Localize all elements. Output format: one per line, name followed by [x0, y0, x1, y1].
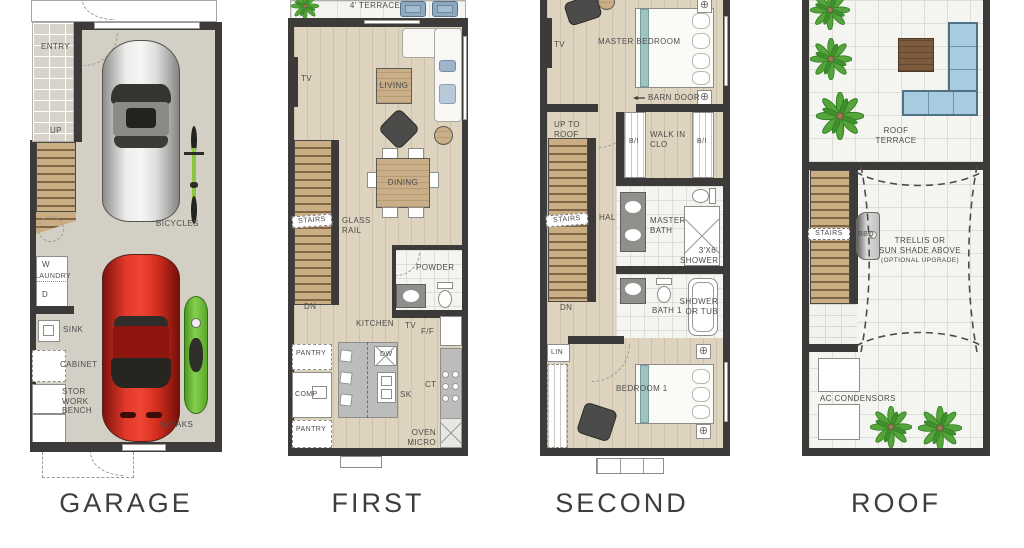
bedroom-wall-left [547, 104, 598, 112]
red-car [102, 254, 180, 442]
barn-door-label: BARN DOOR [648, 93, 700, 103]
powder-label: POWDER [416, 263, 454, 273]
garage-door [94, 22, 200, 29]
bay-window [596, 458, 664, 474]
window [463, 36, 467, 120]
toilet-bowl [438, 290, 452, 308]
bed-pillow [692, 13, 710, 29]
work-bench [32, 384, 66, 414]
laundry-label: LAUNDRY [35, 273, 71, 281]
roof-terrace-label: ROOF TERRACE [872, 126, 920, 145]
burner [442, 383, 449, 390]
kitchen-sink-basin [381, 376, 392, 386]
bed-pillow [692, 53, 710, 69]
kayak-cockpit [189, 338, 203, 372]
floor-plan-sheet: { "floors": { "garage": { "title": "GARA… [0, 0, 1024, 548]
stair-wall [332, 140, 339, 305]
dn-label: DN [560, 303, 572, 313]
sink-label: SINK [63, 325, 83, 335]
bedroom1-bed [635, 364, 714, 424]
island-centerline [367, 342, 368, 418]
burner [442, 371, 449, 378]
island-stool [339, 349, 352, 362]
dishwasher-label: DW [380, 351, 392, 359]
bedroom1-label: BEDROOM 1 [616, 384, 668, 394]
burner [452, 383, 459, 390]
stair-wall [588, 138, 596, 302]
bath-top-wall [616, 178, 723, 186]
entry-label: ENTRY [41, 42, 70, 52]
linen-label: LIN [551, 349, 563, 357]
bedroom1-closet [547, 364, 568, 448]
bath-divider-wall [616, 266, 723, 274]
storage-bench [32, 414, 66, 444]
up-label: UP [50, 126, 62, 136]
ceiling-fan-icon: ⊕ [697, 0, 712, 13]
toilet-bowl [692, 189, 709, 203]
palm-tree-icon [810, 0, 850, 30]
column-circle [38, 216, 64, 242]
oven-microwave [440, 418, 462, 448]
dining-chair [382, 207, 398, 218]
first-floor-plan: 4' TERRACE TV LIVING DINING STAIRS GLASS… [288, 0, 468, 470]
bath-sink [624, 282, 642, 296]
bath-sink [624, 228, 642, 242]
bed-pillow [692, 387, 710, 402]
glass-rail-label: GLASS RAIL [342, 216, 371, 235]
palm-tree-icon [290, 0, 320, 20]
garage-sink-basin [43, 325, 54, 336]
cabinet-label: CABINET [60, 360, 97, 370]
toilet-bowl [657, 286, 671, 303]
garage-floor-plan: ENTRY UP W LAUNDRY D SINK CABINET STOR W… [30, 0, 222, 478]
kitchen-sink-basin [381, 389, 392, 399]
red-car-windshield [111, 358, 171, 388]
dining-chair [408, 207, 424, 218]
trellis-note-label: (OPTIONAL UPGRADE) [876, 257, 964, 265]
powder-sink [402, 289, 420, 303]
dn-label: DN [304, 302, 316, 312]
tv-kitchen-label: TV [405, 321, 416, 331]
burner [442, 395, 449, 402]
bed-accent-runner [640, 9, 649, 87]
garage-title: GARAGE [30, 488, 222, 519]
shower-3x6-label: 3'X6' SHOWER [680, 246, 718, 265]
sofa-throw-blanket [439, 84, 456, 104]
shower-or-tub-label: SHOWER OR TUB [678, 297, 718, 316]
second-bottom-wall [540, 448, 730, 456]
bed-pillow [692, 405, 710, 419]
ac-area-wall [802, 344, 858, 352]
bi-right-label: B/I [697, 138, 707, 146]
roof-title: ROOF [802, 488, 990, 519]
bed-accent-runner [640, 365, 649, 423]
tv-wall-unit [294, 57, 298, 107]
kayak-hatch [191, 318, 201, 328]
terrace-armchair [400, 1, 426, 17]
sectional-sofa-side [434, 28, 462, 122]
sofa-throw-pillow [439, 60, 456, 72]
silver-car-windshield [111, 84, 171, 104]
silver-car-sunroof [126, 108, 156, 128]
tv-label: TV [554, 40, 565, 50]
toilet-tank [437, 282, 453, 289]
terrace-armchair [432, 1, 458, 17]
bed-pillow [692, 71, 710, 85]
walk-in-clo-label: WALK IN CLO [650, 130, 685, 149]
island-stool [339, 371, 352, 384]
island-stool [339, 393, 352, 406]
pantry-upper-label: PANTRY [296, 350, 326, 358]
red-car-roof [113, 326, 169, 360]
garage-right-wall [215, 22, 222, 452]
porch-garage-wall [74, 30, 82, 142]
roof-coffee-table [898, 38, 934, 72]
palm-tree-icon [918, 406, 962, 450]
first-bottom-wall [288, 448, 468, 456]
palm-tree-icon [816, 92, 864, 140]
ceiling-fan-icon: ⊕ [696, 344, 711, 359]
dining-label: DINING [376, 178, 430, 188]
kayaks-label: KAYAKS [160, 420, 193, 430]
ac-condensors-label: AC CONDENSORS [820, 394, 896, 404]
ac-condensor-unit [818, 358, 860, 392]
red-car-hood-vent [120, 412, 136, 418]
palm-tree-icon [810, 38, 852, 80]
laundry-wall [30, 306, 74, 314]
living-label: LIVING [376, 81, 412, 91]
closet-wall [616, 112, 624, 178]
cooktop [441, 370, 461, 404]
washer-dryer-unit [36, 256, 68, 308]
driveway-apron [31, 0, 217, 22]
ac-condensor-unit [818, 404, 860, 440]
window [724, 362, 728, 422]
bicycles-label: BICYCLES [156, 219, 199, 229]
roof-right-wall [983, 0, 990, 456]
first-title: FIRST [288, 488, 468, 519]
entry-porch-tile [32, 22, 74, 142]
master-bedroom-label: MASTER BEDROOM [598, 37, 681, 47]
fridge-label: F/F [421, 327, 434, 337]
bicycle-handlebar [184, 152, 204, 155]
terrace-slider-door [364, 20, 420, 24]
master-bed [635, 8, 714, 88]
tv-wall-unit [547, 18, 552, 68]
garage-stairs [36, 142, 76, 212]
bed-pillow [692, 33, 710, 49]
toilet-tank [656, 278, 672, 285]
washer-label: W [42, 260, 50, 270]
cooktop-label: CT [425, 380, 436, 390]
oven-micro-label: OVEN MICRO [396, 428, 436, 447]
bath-sink [624, 200, 642, 214]
burner [452, 371, 459, 378]
kayak [184, 296, 208, 414]
stor-work-bench-label: STOR WORK BENCH [62, 387, 92, 416]
entry-step [340, 456, 382, 468]
garage-rear-door [122, 444, 166, 451]
second-title: SECOND [532, 488, 712, 519]
ceiling-fan-icon: ⊕ [696, 424, 711, 439]
landing-tile [809, 304, 857, 346]
silver-car [102, 40, 180, 222]
trellis-label: TRELLIS OR SUN SHADE ABOVE [874, 236, 966, 255]
kitchen-label: KITCHEN [356, 319, 394, 329]
bedroom1-wall [568, 336, 624, 344]
roof-bottom-wall [802, 448, 990, 456]
bedroom-wall-right [636, 104, 723, 112]
master-bath-label: MASTER BATH [650, 216, 686, 235]
roof-sectional-sofa-bottom [902, 90, 978, 116]
red-car-hood-vent [146, 412, 162, 418]
stairs-tag: STAIRS [808, 228, 850, 240]
pantry-lower-label: PANTRY [296, 426, 326, 434]
sink-sk-label: SK [400, 390, 411, 400]
dryer-label: D [42, 290, 48, 300]
tv-label: TV [301, 74, 312, 84]
dining-chair [429, 172, 439, 188]
palm-tree-icon [870, 406, 912, 448]
computer-label: COMP [295, 391, 318, 399]
up-to-roof-label: UP TO ROOF [554, 120, 580, 139]
roof-plan: ROOF TERRACE STAIRS BBQ TRELLIS OR SUN S… [802, 0, 990, 464]
toilet-tank [709, 188, 716, 204]
silver-car-rear-glass [114, 136, 168, 148]
bi-left-label: B/I [629, 138, 639, 146]
window [724, 16, 728, 86]
bicycle [182, 126, 206, 224]
fridge [440, 316, 462, 346]
round-side-table [434, 126, 453, 145]
bicycle-seat [190, 182, 198, 188]
bed-pillow [692, 369, 710, 384]
second-left-wall [540, 0, 547, 456]
second-floor-plan: ⊕ ⊕ TV MASTER BEDROOM BARN DOOR UP TO RO… [540, 0, 730, 478]
burner [452, 395, 459, 402]
